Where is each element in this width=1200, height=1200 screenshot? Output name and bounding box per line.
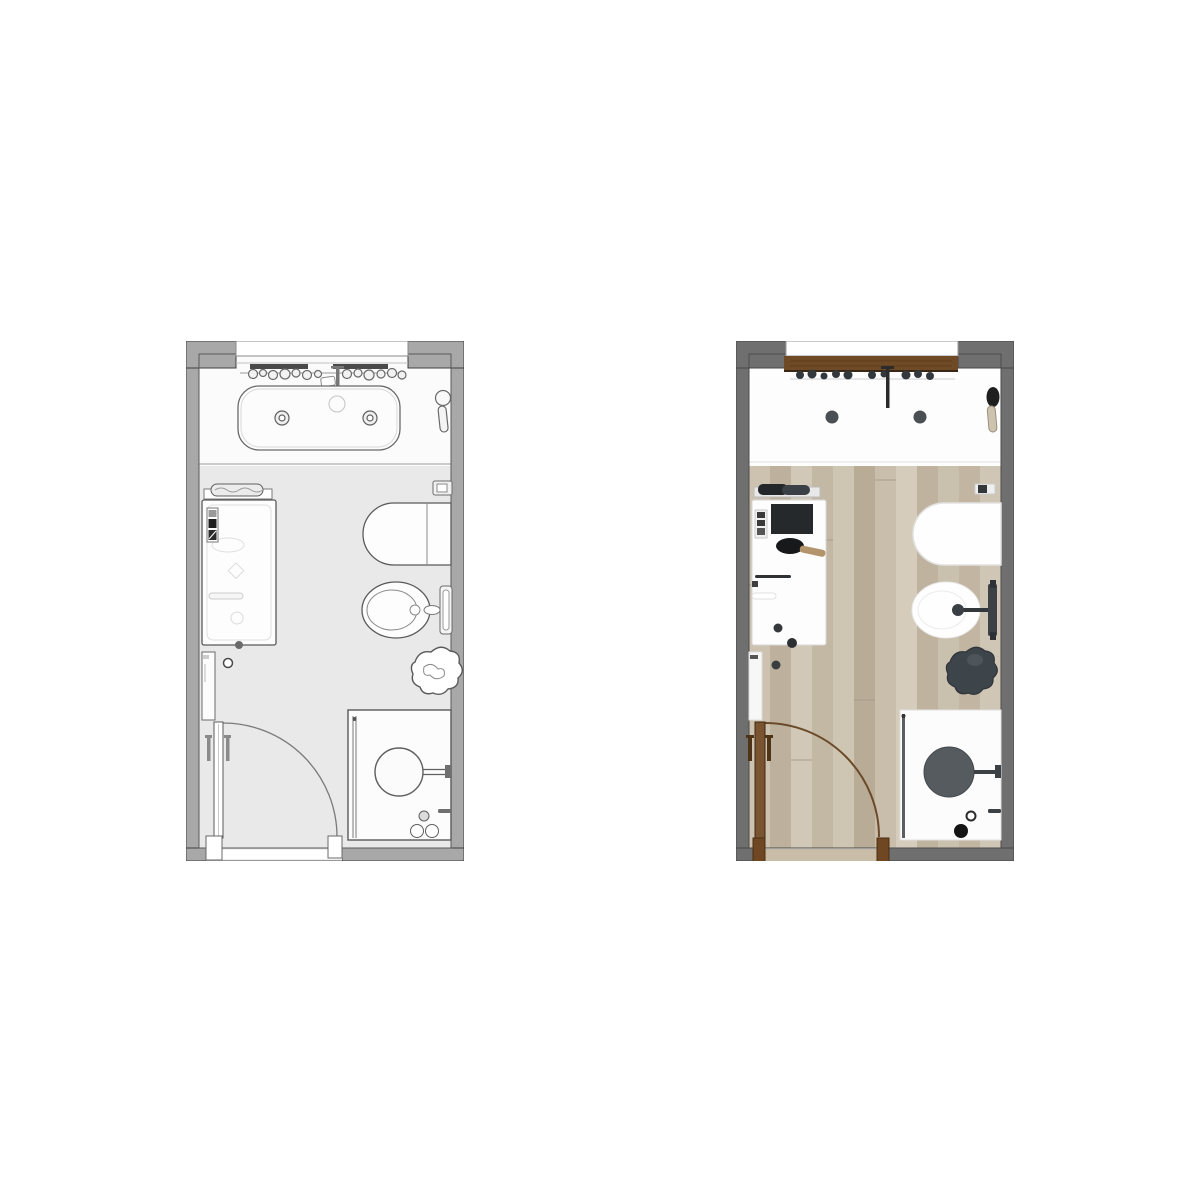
rendered-floor-plan [736,341,1014,861]
bath-control-panel [755,510,767,538]
threshold-left [206,836,222,860]
window-niche [786,341,958,356]
bathtub-with-headrest [752,500,826,648]
wall-hung-toilet [363,503,451,565]
grab-bar [755,575,791,578]
schematic-floor-plan [186,341,464,861]
soap-dish [321,376,336,387]
wall-cabinet [202,652,215,720]
walk-in-shower [348,710,451,840]
bath-headrest [771,504,813,534]
tub-drain [235,641,243,649]
bathtub [202,500,276,649]
flush-plate [975,484,995,494]
wall-hung-toilet [913,503,1001,565]
bath-pillow [776,538,804,554]
wall-cabinet [749,652,762,720]
shower-glass-panel [902,714,905,838]
wood-shelf-with-toiletries [784,356,958,380]
bath-control-panel [207,508,218,542]
double-trough-sink [238,386,400,450]
schematic-floor-plan-svg [186,341,464,861]
flush-plate [433,481,452,495]
potted-plant [411,647,462,694]
floor-drain [772,661,781,670]
door-leaf [755,722,765,838]
towel-rail [204,484,272,499]
shower-control [438,809,451,813]
floor-plan-comparison [0,0,1200,1200]
rendered-floor-plan-svg [736,341,1014,861]
door-post-right [877,838,889,861]
floor-drain [224,659,233,668]
door-post-left [753,838,765,861]
shower-control [988,809,1001,813]
walk-in-shower [900,710,1001,840]
threshold-right [328,836,342,858]
bidet-spout [424,606,440,615]
